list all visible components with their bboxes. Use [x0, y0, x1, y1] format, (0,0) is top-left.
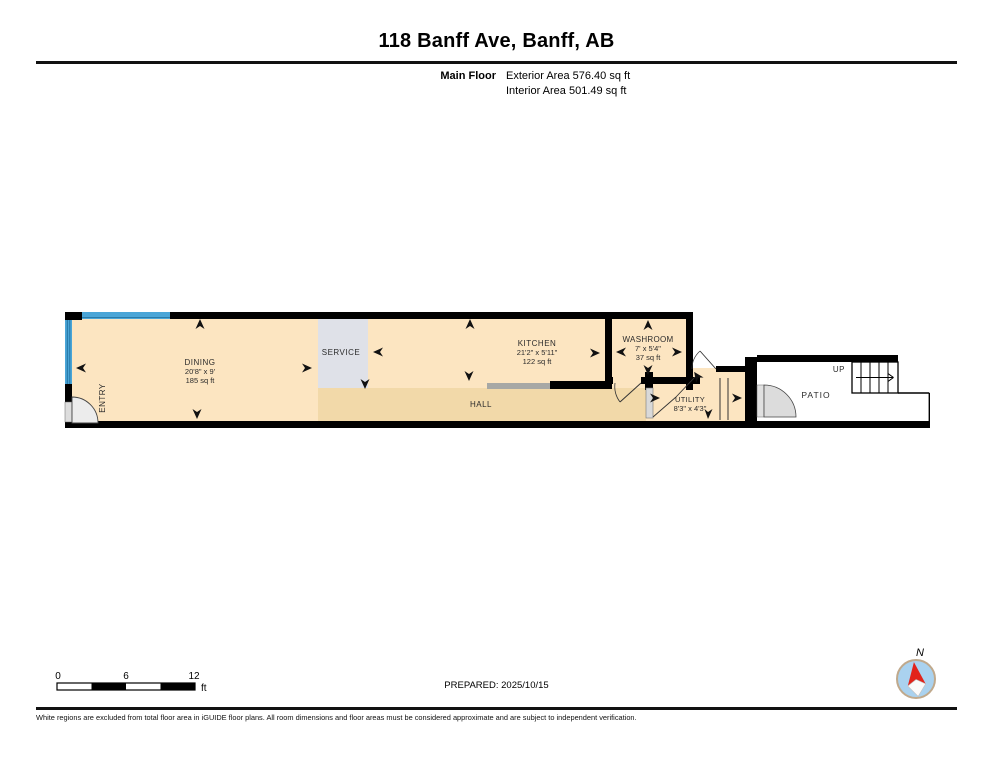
- label-washroom-area: 37 sq ft: [636, 353, 662, 362]
- wall-patio-top: [757, 355, 898, 362]
- label-dining: DINING: [185, 358, 216, 367]
- footer-divider: [36, 707, 957, 710]
- label-patio: PATIO: [801, 390, 830, 400]
- label-washroom: WASHROOM: [623, 335, 674, 344]
- floorplan-drawing: ENTRY DINING 20'8" x 9' 185 sq ft SERVIC…: [0, 0, 993, 768]
- utility-rear-door-arc-icon: [692, 351, 700, 369]
- label-washroom-dims: 7' x 5'4": [635, 344, 661, 353]
- label-kitchen: KITCHEN: [518, 339, 557, 348]
- wall-hall-utility-stub: [645, 372, 653, 390]
- patio-door-gap: [757, 385, 764, 417]
- kitchen-counter: [487, 383, 550, 389]
- label-kitchen-area: 122 sq ft: [523, 357, 553, 366]
- label-service: SERVICE: [322, 348, 360, 357]
- hall-utility-door-leaf-icon: [646, 388, 653, 418]
- label-utility-dims: 8'3" x 4'3": [674, 404, 707, 413]
- entry-door-gap: [65, 402, 72, 422]
- label-dining-area: 185 sq ft: [186, 376, 216, 385]
- wall-utility-top-stub: [716, 366, 745, 372]
- window-left-icon: [65, 320, 72, 384]
- wall-patio-left: [745, 357, 757, 428]
- label-utility: UTILITY: [675, 395, 705, 404]
- wall-corner-block: [65, 312, 82, 320]
- compass-north-label: N: [916, 647, 924, 659]
- prepared-date: PREPARED: 2025/10/15: [0, 680, 993, 691]
- label-stairs-up: UP: [833, 365, 845, 374]
- disclaimer-text: White regions are excluded from total fl…: [36, 713, 957, 722]
- washroom-door-gap: [613, 377, 641, 384]
- wall-bottom: [65, 421, 930, 428]
- label-entry: ENTRY: [98, 383, 107, 413]
- stairs-up-icon: [852, 362, 898, 393]
- utility-rear-door-leaf-icon: [700, 351, 716, 369]
- floorplan-page: 118 Banff Ave, Banff, AB Main Floor Exte…: [0, 0, 993, 768]
- wall-washroom-left: [605, 312, 612, 384]
- label-dining-dims: 20'8" x 9': [185, 367, 216, 376]
- label-hall: HALL: [470, 400, 492, 409]
- label-kitchen-dims: 21'2" x 5'11": [517, 348, 558, 357]
- wall-kitchen-bottom: [550, 381, 612, 389]
